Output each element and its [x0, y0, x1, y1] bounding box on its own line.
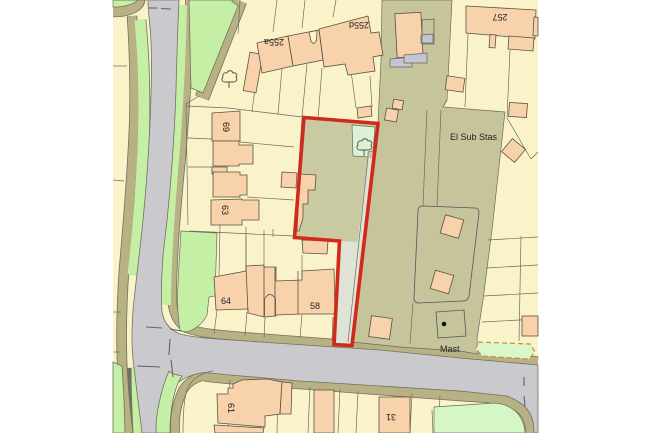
svg-text:63: 63	[220, 205, 230, 215]
svg-text:58: 58	[310, 301, 320, 311]
svg-text:64: 64	[221, 296, 231, 306]
svg-text:61: 61	[226, 403, 236, 413]
svg-text:255a: 255a	[264, 37, 284, 47]
svg-text:69: 69	[221, 122, 231, 132]
svg-text:Mast: Mast	[440, 344, 460, 354]
svg-text:255d: 255d	[349, 20, 369, 30]
svg-text:257: 257	[492, 12, 507, 22]
svg-text:El Sub Stas: El Sub Stas	[450, 132, 498, 142]
svg-text:31: 31	[386, 412, 396, 422]
